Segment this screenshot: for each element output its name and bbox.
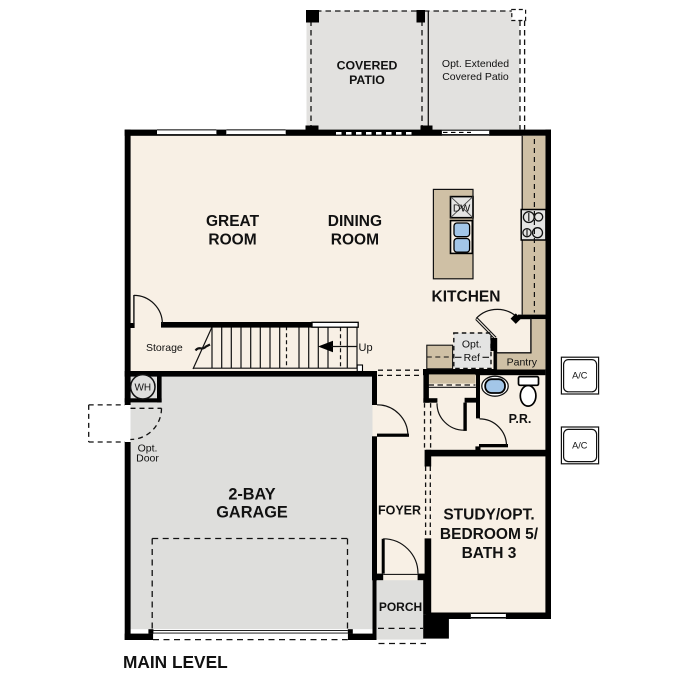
svg-text:Covered Patio: Covered Patio: [442, 71, 509, 83]
svg-text:A/C: A/C: [572, 371, 588, 381]
svg-text:MAIN LEVEL: MAIN LEVEL: [123, 652, 228, 672]
svg-text:PATIO: PATIO: [349, 73, 385, 87]
svg-text:Storage: Storage: [146, 342, 183, 354]
svg-text:ROOM: ROOM: [331, 232, 379, 249]
svg-text:Ref: Ref: [464, 352, 480, 364]
svg-text:FOYER: FOYER: [378, 504, 421, 518]
svg-text:Pantry: Pantry: [507, 356, 538, 368]
svg-text:GARAGE: GARAGE: [216, 504, 288, 522]
svg-text:A/C: A/C: [572, 440, 588, 450]
svg-text:Opt.: Opt.: [462, 339, 482, 351]
svg-text:WH: WH: [134, 382, 151, 393]
svg-text:2-BAY: 2-BAY: [228, 486, 275, 504]
svg-text:DINING: DINING: [328, 213, 382, 230]
svg-text:ROOM: ROOM: [208, 232, 256, 249]
svg-text:PORCH: PORCH: [379, 600, 422, 614]
svg-text:BEDROOM 5/: BEDROOM 5/: [440, 526, 539, 543]
svg-text:BATH 3: BATH 3: [462, 545, 517, 562]
svg-text:STUDY/OPT.: STUDY/OPT.: [443, 507, 534, 524]
svg-text:Door: Door: [136, 453, 159, 465]
svg-text:Up: Up: [359, 342, 373, 354]
svg-text:GREAT: GREAT: [206, 213, 260, 230]
svg-text:Opt. Extended: Opt. Extended: [442, 58, 509, 70]
svg-text:P.R.: P.R.: [509, 412, 532, 426]
svg-text:COVERED: COVERED: [337, 59, 398, 73]
svg-text:KITCHEN: KITCHEN: [432, 289, 501, 306]
svg-text:DW: DW: [453, 203, 471, 215]
